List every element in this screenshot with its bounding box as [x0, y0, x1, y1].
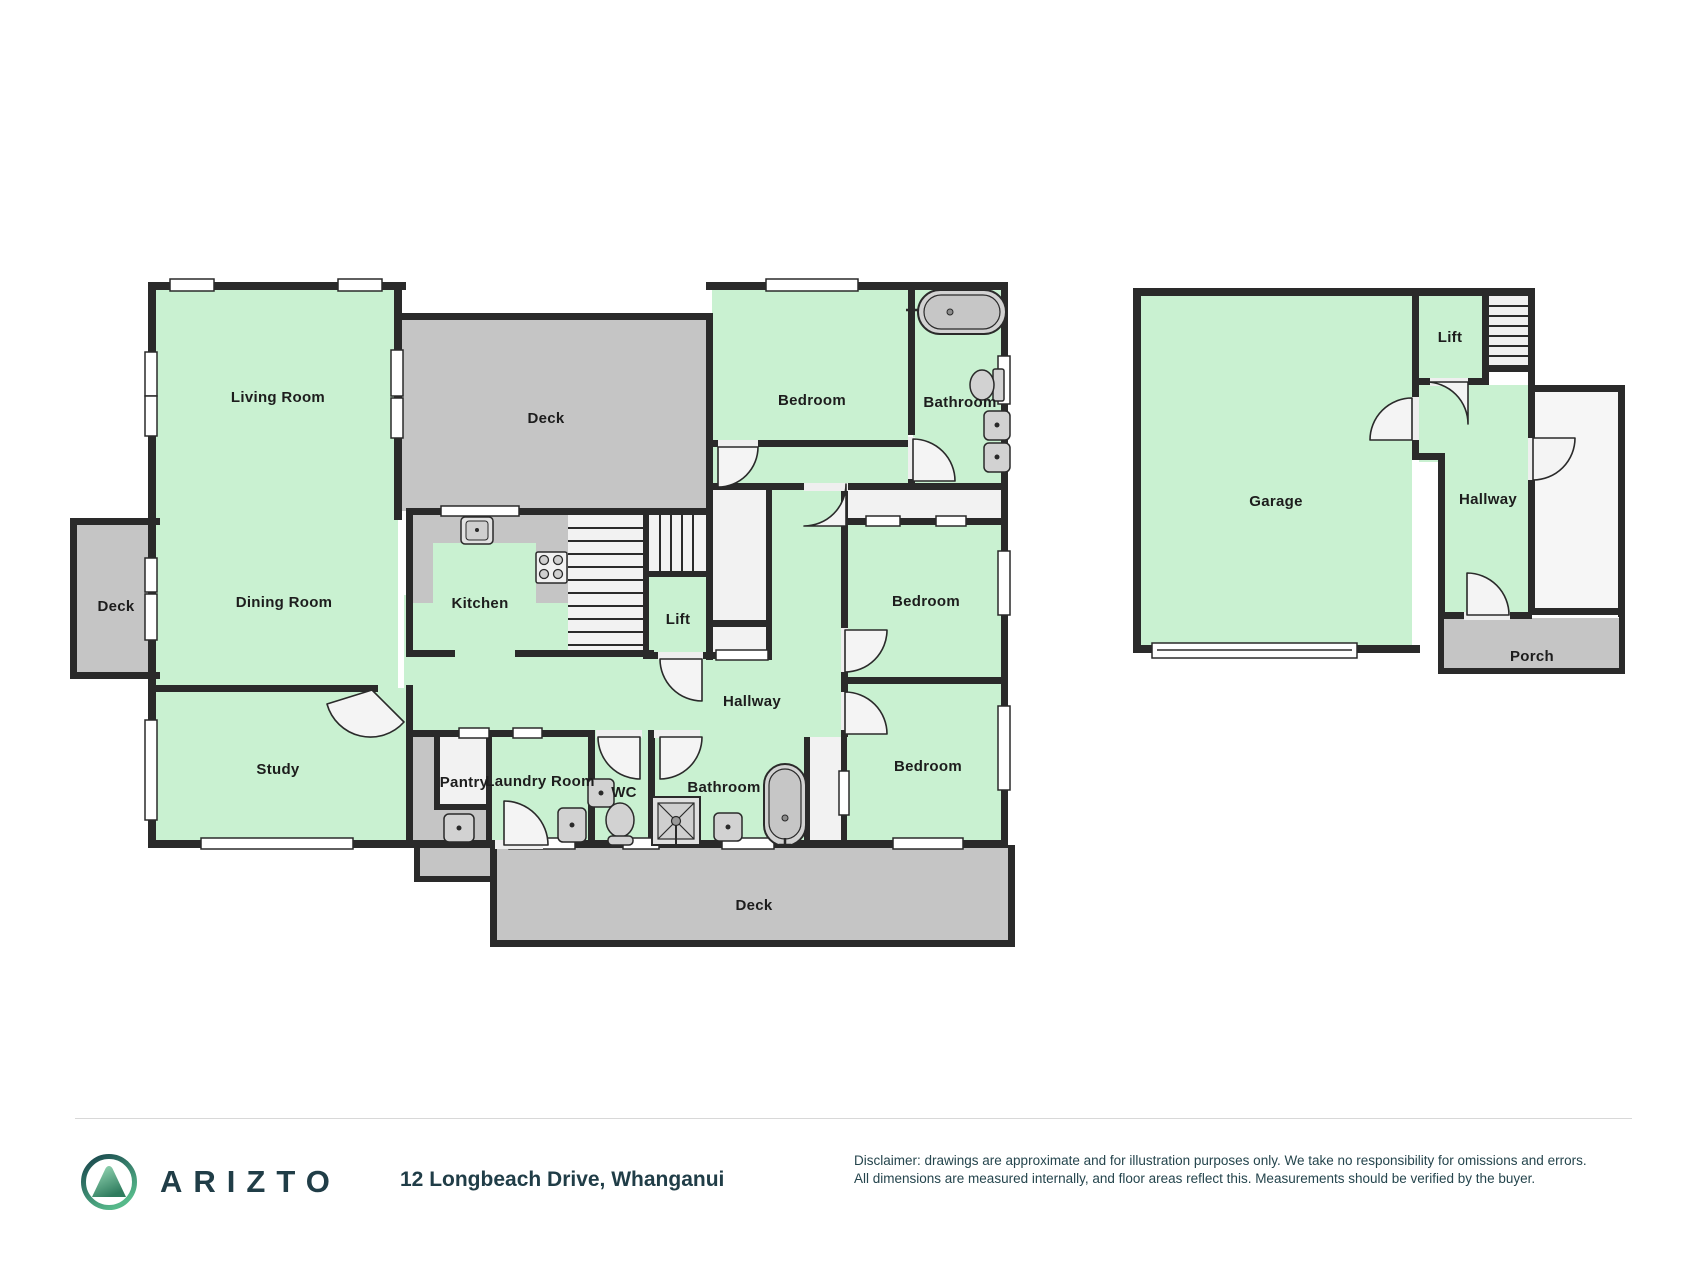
disclaimer-text: Disclaimer: drawings are approximate and… — [854, 1152, 1634, 1187]
room-label-deck-top: Deck — [527, 410, 564, 427]
shower-icon — [652, 797, 700, 845]
kitchen-sink-icon — [461, 517, 493, 544]
brand-logo-row: ARIZTO — [80, 1150, 341, 1214]
room-label-bedroom-middle: Bedroom — [892, 593, 960, 610]
floorplan-canvas: Living Room Dining Room Study Kitchen De… — [0, 0, 1707, 1120]
room-label-lift2: Lift — [1438, 329, 1463, 346]
arizto-mountain-logo — [80, 1153, 138, 1211]
room-label-bathroom-front: Bathroom — [923, 394, 996, 411]
room-label-bedroom-rear: Bedroom — [894, 758, 962, 775]
room-label-garage: Garage — [1249, 493, 1303, 510]
room-label-living-room: Living Room — [231, 389, 325, 406]
room-label-deck-left: Deck — [97, 598, 134, 615]
room-label-lift: Lift — [666, 611, 691, 628]
room-label-deck-bottom: Deck — [735, 897, 772, 914]
footer-divider — [75, 1118, 1632, 1119]
room-label-hallway: Hallway — [723, 693, 781, 710]
room-label-wc: WC — [611, 784, 637, 801]
room-label-bathroom-rear: Bathroom — [687, 779, 760, 796]
room-label-kitchen: Kitchen — [451, 595, 508, 612]
toilet-icon — [606, 803, 634, 845]
room-label-hallway2: Hallway — [1459, 491, 1517, 508]
bathtub-icon — [764, 764, 806, 848]
room-label-pantry: Pantry — [440, 774, 489, 791]
brand-name: ARIZTO — [160, 1164, 341, 1200]
room-label-bedroom-front: Bedroom — [778, 392, 846, 409]
stove-icon — [536, 552, 567, 583]
disclaimer-line-1: Disclaimer: drawings are approximate and… — [854, 1152, 1634, 1170]
room-label-laundry-room: Laundry Room — [485, 773, 594, 790]
property-address: 12 Longbeach Drive, Whanganui — [400, 1168, 724, 1192]
room-label-porch: Porch — [1510, 648, 1554, 665]
room-label-dining-room: Dining Room — [236, 594, 333, 611]
room-label-study: Study — [256, 761, 300, 778]
garage-door-icon — [1152, 643, 1357, 658]
floorplan-page: { "floor1": { "rooms": { "living_room": … — [0, 0, 1707, 1280]
store-room-area — [1535, 392, 1618, 608]
disclaimer-line-2: All dimensions are measured internally, … — [854, 1170, 1634, 1188]
